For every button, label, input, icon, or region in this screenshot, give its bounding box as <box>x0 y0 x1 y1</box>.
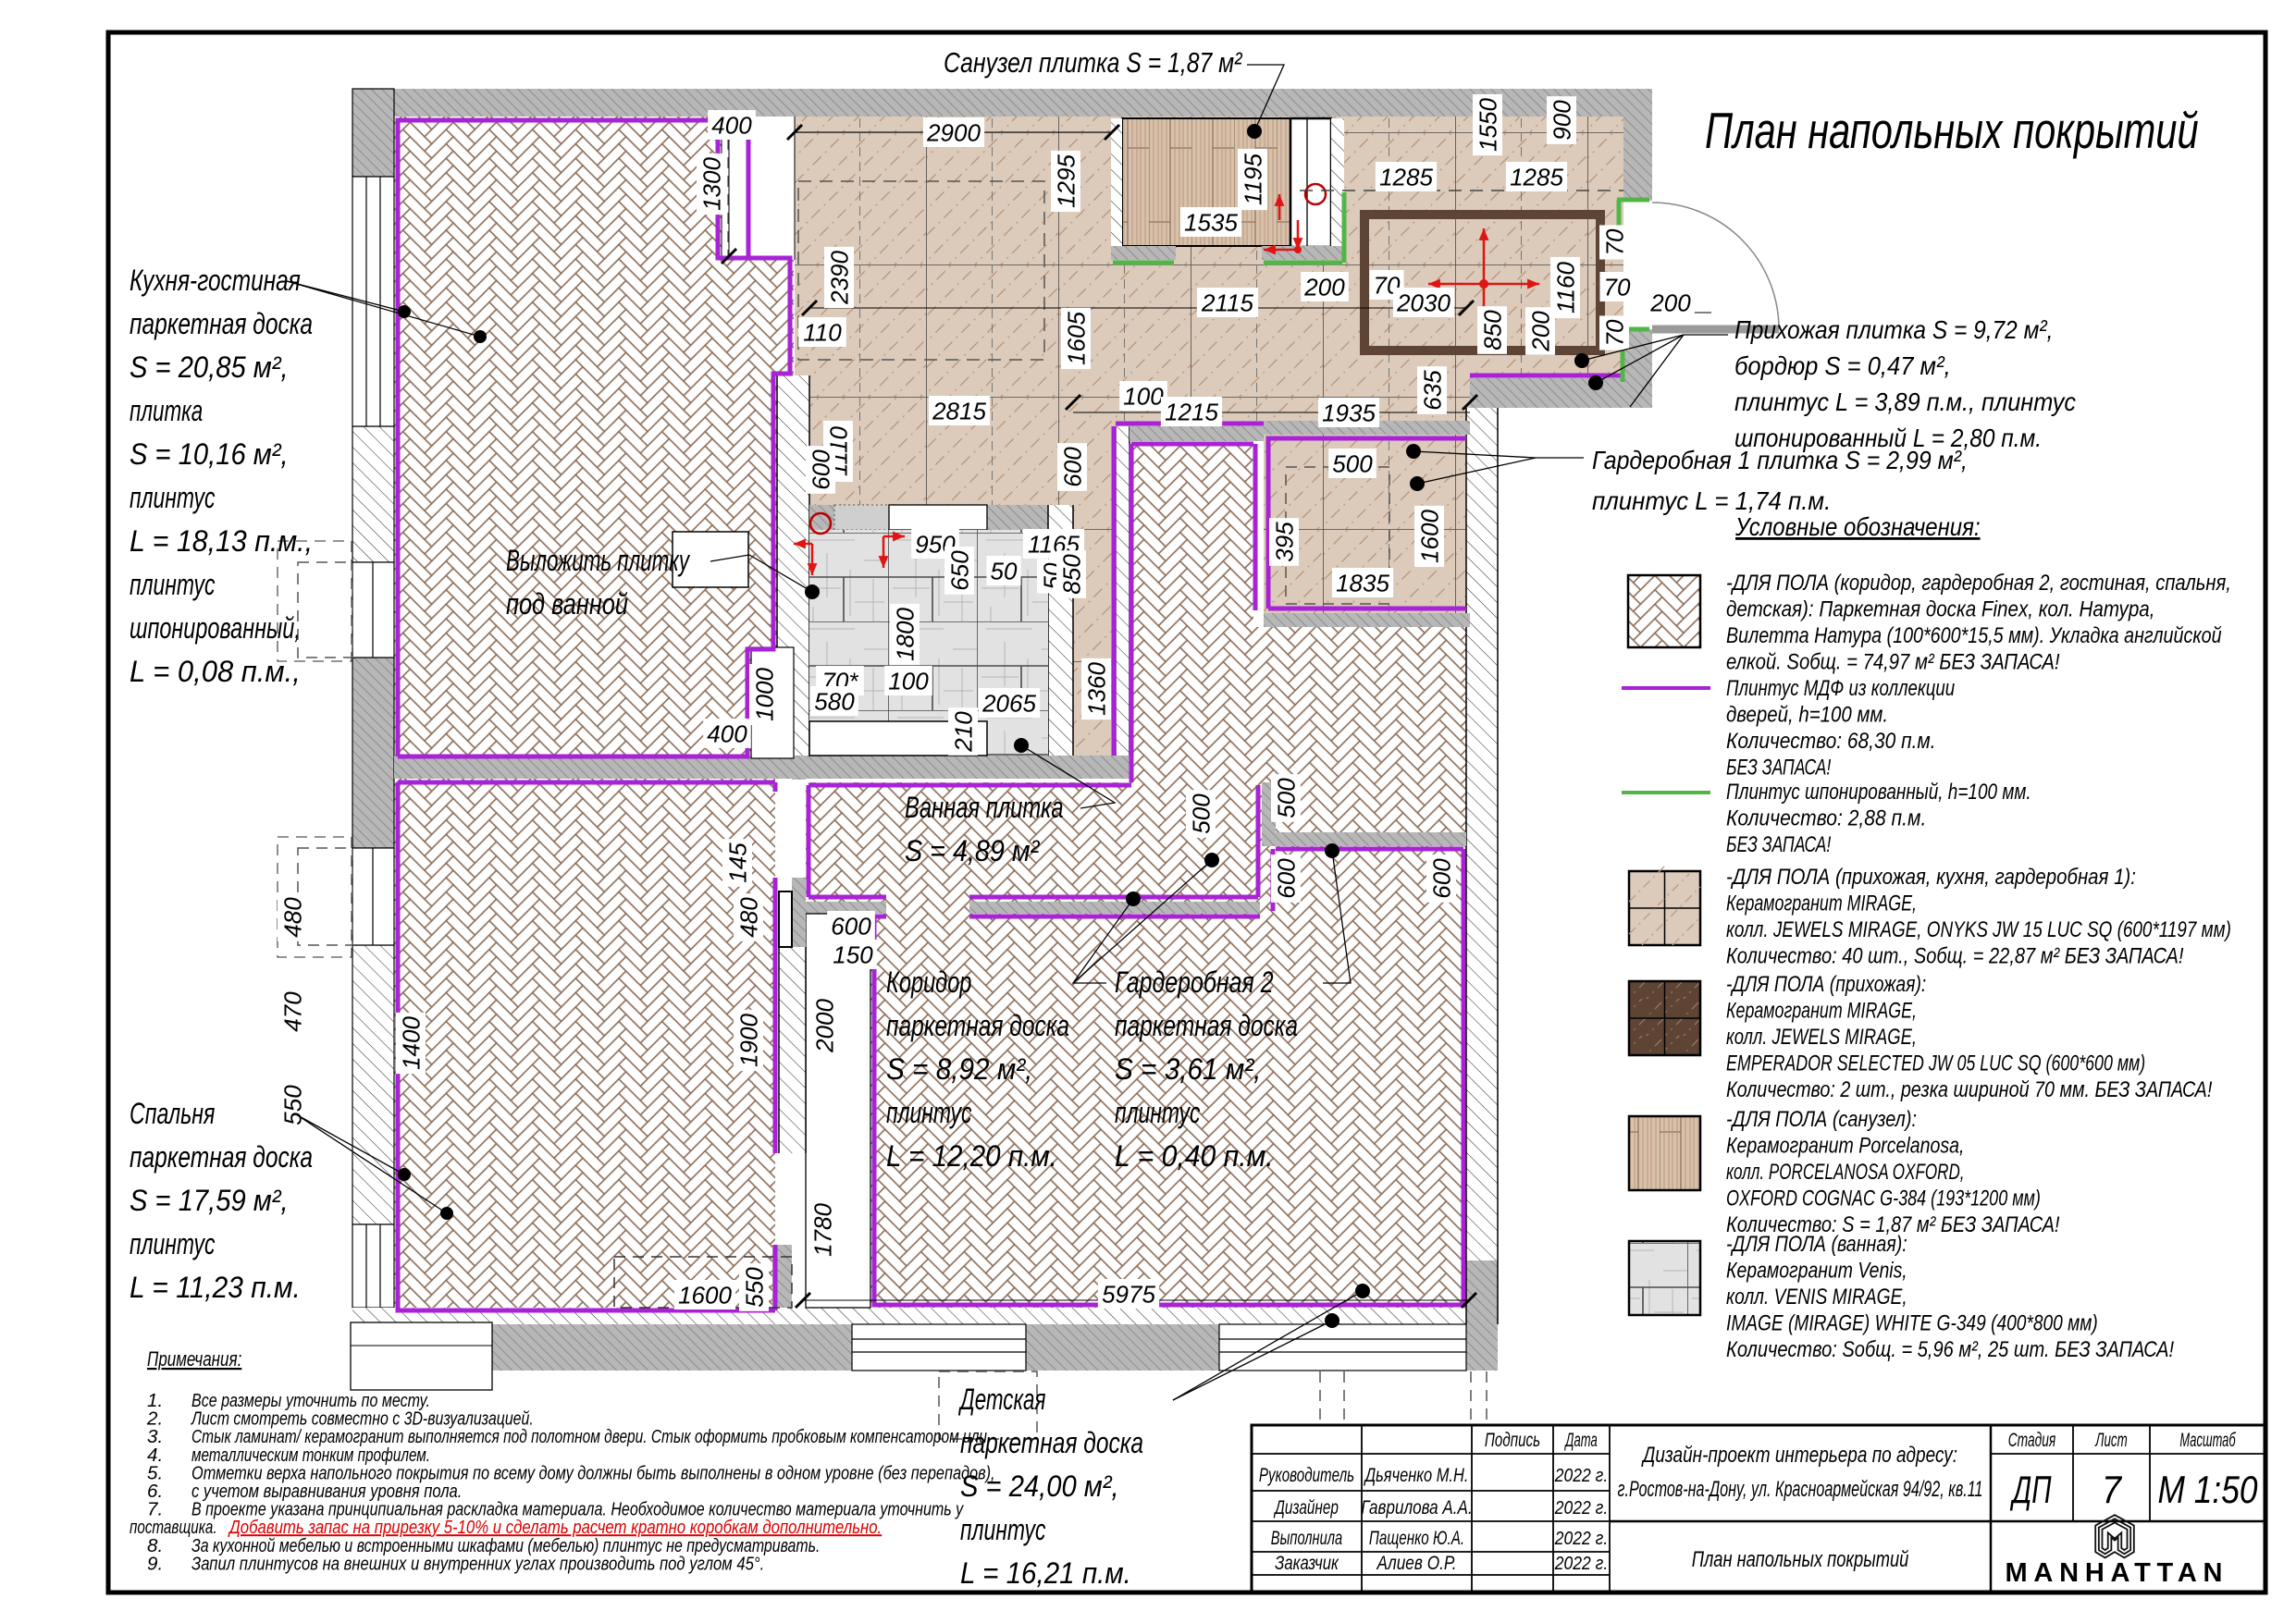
svg-text:Выложить плитку: Выложить плитку <box>506 544 690 577</box>
svg-text:Масштаб: Масштаб <box>2179 1430 2236 1451</box>
svg-text:шпонированный,: шпонированный, <box>130 611 301 645</box>
svg-text:Санузел плитка S = 1,87 м²: Санузел плитка S = 1,87 м² <box>944 46 1243 79</box>
svg-text:110: 110 <box>803 318 842 346</box>
svg-text:1300: 1300 <box>697 157 725 211</box>
svg-text:S = 4,89 м²: S = 4,89 м² <box>905 834 1040 867</box>
svg-text:100: 100 <box>1123 382 1164 410</box>
svg-text:М 1:50: М 1:50 <box>2158 1468 2259 1511</box>
svg-text:План напольных покрытий: План напольных покрытий <box>1705 102 2199 159</box>
svg-text:паркетная доска: паркетная доска <box>130 1140 313 1174</box>
svg-text:Примечания:: Примечания: <box>147 1347 241 1371</box>
svg-text:1400: 1400 <box>397 1016 425 1070</box>
svg-text:под ванной: под ванной <box>506 587 628 621</box>
svg-text:850: 850 <box>1057 554 1085 595</box>
svg-text:1295: 1295 <box>1052 154 1080 208</box>
svg-text:L = 12,20 п.м.: L = 12,20 п.м. <box>886 1139 1057 1173</box>
svg-text:2115: 2115 <box>1201 289 1253 316</box>
svg-text:Керамогранит MIRAGE,: Керамогранит MIRAGE, <box>1726 891 1917 916</box>
svg-text:плинтус: плинтус <box>886 1096 971 1129</box>
svg-text:S = 10,16 м²,: S = 10,16 м², <box>130 437 289 471</box>
svg-text:2022 г.: 2022 г. <box>1554 1466 1608 1486</box>
svg-text:1535: 1535 <box>1184 208 1238 236</box>
svg-text:Количество: 2 шт., резка ширин: Количество: 2 шт., резка шириной 70 мм. … <box>1726 1077 2213 1102</box>
svg-text:200: 200 <box>1526 311 1554 352</box>
svg-text:Стадия: Стадия <box>2008 1430 2056 1451</box>
svg-text:S = 8,92 м²,: S = 8,92 м², <box>886 1052 1032 1086</box>
svg-text:600: 600 <box>1272 858 1300 899</box>
svg-text:детская): Паркетная доска Fine: детская): Паркетная доска Finex, кол. На… <box>1726 597 2155 622</box>
svg-text:1800: 1800 <box>891 608 919 661</box>
svg-text:-ДЛЯ ПОЛА (прихожая):: -ДЛЯ ПОЛА (прихожая): <box>1726 972 1926 997</box>
svg-text:бордюр S = 0,47 м²,: бордюр S = 0,47 м², <box>1734 351 1951 380</box>
svg-text:Выполнила: Выполнила <box>1271 1528 1342 1549</box>
svg-text:БЕЗ ЗАПАСА!: БЕЗ ЗАПАСА! <box>1726 756 1832 781</box>
svg-text:Детская: Детская <box>958 1383 1045 1416</box>
svg-text:900: 900 <box>1548 100 1575 141</box>
svg-text:Плинтус шпонированный, h=100 м: Плинтус шпонированный, h=100 мм. <box>1726 780 2031 805</box>
svg-text:200: 200 <box>1649 289 1691 316</box>
svg-text:70: 70 <box>1600 319 1628 346</box>
svg-text:1215: 1215 <box>1165 398 1218 425</box>
svg-text:колл. PORCELANOSA OXFORD,: колл. PORCELANOSA OXFORD, <box>1726 1160 1965 1185</box>
svg-text:70: 70 <box>1600 228 1628 255</box>
svg-text:2000: 2000 <box>810 999 838 1053</box>
svg-text:70: 70 <box>1604 273 1631 301</box>
svg-text:г.Ростов-на-Дону, ул. Красноар: г.Ростов-на-Дону, ул. Красноармейская 94… <box>1618 1477 1983 1502</box>
svg-text:плинтус: плинтус <box>1115 1096 1200 1129</box>
svg-text:1160: 1160 <box>1551 262 1579 314</box>
svg-text:Пащенко Ю.А.: Пащенко Ю.А. <box>1369 1528 1464 1549</box>
svg-text:паркетная доска: паркетная доска <box>960 1426 1143 1459</box>
svg-text:Алиев О.Р.: Алиев О.Р. <box>1376 1553 1457 1574</box>
svg-text:План напольных покрытий: План напольных покрытий <box>1692 1547 1909 1572</box>
svg-text:EMPERADOR SELECTED JW 05 LUC S: EMPERADOR SELECTED JW 05 LUC SQ (600*600… <box>1726 1051 2145 1076</box>
svg-text:150: 150 <box>833 941 873 968</box>
svg-text:БЕЗ ЗАПАСА!: БЕЗ ЗАПАСА! <box>1726 832 1832 857</box>
svg-text:Дата: Дата <box>1564 1430 1598 1451</box>
svg-text:Количество: Sобщ. = 5,96 м², 2: Количество: Sобщ. = 5,96 м², 25 шт. БЕЗ … <box>1726 1337 2174 1362</box>
svg-text:Кухня-гостиная: Кухня-гостиная <box>130 264 301 297</box>
svg-text:Дизайнер: Дизайнер <box>1274 1497 1339 1518</box>
svg-text:Подпись: Подпись <box>1485 1430 1540 1451</box>
svg-text:5975: 5975 <box>1102 1280 1155 1308</box>
svg-text:600: 600 <box>1058 447 1086 487</box>
svg-text:470: 470 <box>278 991 306 1032</box>
svg-text:Количество: 68,30 п.м.: Количество: 68,30 п.м. <box>1726 729 1936 754</box>
svg-text:OXFORD COGNAC G-384 (193*1200: OXFORD COGNAC G-384 (193*1200 мм) <box>1726 1187 2041 1211</box>
svg-text:480: 480 <box>278 897 306 938</box>
svg-text:Гардеробная 2: Гардеробная 2 <box>1115 965 1274 999</box>
svg-text:200: 200 <box>1303 273 1345 301</box>
svg-text:500: 500 <box>1332 449 1373 477</box>
svg-text:-ДЛЯ ПОЛА (прихожая, кухня, га: -ДЛЯ ПОЛА (прихожая, кухня, гардеробная … <box>1726 865 2136 890</box>
svg-text:плинтус L = 3,89 п.м., плинтус: плинтус L = 3,89 п.м., плинтус <box>1734 387 2076 416</box>
svg-text:Прихожая плитка S = 9,72 м²,: Прихожая плитка S = 9,72 м², <box>1734 315 2053 344</box>
svg-text:плинтус: плинтус <box>130 1227 215 1260</box>
svg-text:600: 600 <box>807 449 834 490</box>
svg-text:ДП: ДП <box>2010 1468 2052 1511</box>
svg-text:L = 18,13 п.м.,: L = 18,13 п.м., <box>130 524 313 558</box>
svg-text:Количество: 40 шт., Sобщ. = 22: Количество: 40 шт., Sобщ. = 22,87 м² БЕЗ… <box>1726 944 2184 969</box>
svg-text:Руководитель: Руководитель <box>1259 1465 1354 1486</box>
svg-text:S = 3,61 м²,: S = 3,61 м², <box>1115 1052 1261 1086</box>
svg-text:600: 600 <box>1427 858 1455 899</box>
svg-text:Количество: 2,88 п.м.: Количество: 2,88 п.м. <box>1726 806 1926 831</box>
svg-text:2390: 2390 <box>825 251 853 305</box>
svg-text:210: 210 <box>949 711 977 753</box>
svg-text:L = 0,08 п.м.,: L = 0,08 п.м., <box>130 655 301 688</box>
svg-text:паркетная доска: паркетная доска <box>130 307 313 340</box>
svg-text:Запил плинтусов на внешних и в: Запил плинтусов на внешних и внутренних … <box>191 1554 764 1574</box>
svg-text:елкой. Sобщ. = 74,97 м² БЕЗ ЗА: елкой. Sобщ. = 74,97 м² БЕЗ ЗАПАСА! <box>1726 650 2060 675</box>
svg-text:Лист: Лист <box>2094 1430 2128 1451</box>
svg-text:2022 г.: 2022 г. <box>1554 1554 1608 1574</box>
svg-text:Керамогранит Venis,: Керамогранит Venis, <box>1726 1259 1907 1284</box>
svg-text:-ДЛЯ ПОЛА (санузел):: -ДЛЯ ПОЛА (санузел): <box>1726 1107 1917 1132</box>
svg-text:650: 650 <box>945 550 973 591</box>
svg-text:дверей, h=100 мм.: дверей, h=100 мм. <box>1726 703 1888 728</box>
svg-text:1285: 1285 <box>1510 163 1563 191</box>
svg-text:2065: 2065 <box>981 689 1036 717</box>
svg-text:L = 0,40 п.м.: L = 0,40 п.м. <box>1115 1139 1274 1173</box>
svg-text:колл. VENIS MIRAGE,: колл. VENIS MIRAGE, <box>1726 1285 1907 1309</box>
svg-text:L = 11,23 п.м.: L = 11,23 п.м. <box>130 1271 301 1304</box>
svg-text:100: 100 <box>888 667 929 695</box>
svg-text:2815: 2815 <box>932 397 986 424</box>
svg-text:Керамогранит MIRAGE,: Керамогранит MIRAGE, <box>1726 999 1917 1024</box>
svg-text:MANHATTAN: MANHATTAN <box>2006 1558 2223 1588</box>
svg-text:400: 400 <box>707 719 747 747</box>
svg-text:580: 580 <box>814 687 855 715</box>
svg-text:-ДЛЯ ПОЛА (ванная):: -ДЛЯ ПОЛА (ванная): <box>1726 1232 1907 1257</box>
svg-text:550: 550 <box>740 1267 768 1308</box>
svg-text:Условные обозначения:: Условные обозначения: <box>1734 512 1980 541</box>
svg-text:1550: 1550 <box>1474 98 1501 152</box>
svg-text:колл. JEWELS MIRAGE, ONYKS JW: колл. JEWELS MIRAGE, ONYKS JW 15 LUC SQ … <box>1726 917 2231 942</box>
svg-text:850: 850 <box>1478 310 1506 350</box>
svg-text:плинтус: плинтус <box>130 481 215 514</box>
svg-text:1360: 1360 <box>1082 662 1110 716</box>
svg-text:Вилетта Натура (100*600*15,5 м: Вилетта Натура (100*600*15,5 мм). Укладк… <box>1726 623 2222 648</box>
svg-text:L = 16,21 п.м.: L = 16,21 п.м. <box>960 1556 1131 1590</box>
svg-text:480: 480 <box>734 897 762 938</box>
svg-text:Гардеробная 1 плитка S = 2,99: Гардеробная 1 плитка S = 2,99 м², <box>1592 446 1968 474</box>
svg-text:600: 600 <box>831 912 871 940</box>
svg-text:1600: 1600 <box>1415 510 1443 563</box>
svg-text:Дизайн-проект интерьера по адр: Дизайн-проект интерьера по адресу: <box>1641 1443 1957 1468</box>
svg-text:Керамогранит Porcelanosa,: Керамогранит Porcelanosa, <box>1726 1134 1965 1159</box>
svg-text:IMAGE (MIRAGE) WHITE G-349 (40: IMAGE (MIRAGE) WHITE G-349 (400*800 мм) <box>1726 1311 2098 1336</box>
svg-text:500: 500 <box>1187 793 1215 834</box>
svg-text:S = 20,85 м²,: S = 20,85 м², <box>130 350 289 384</box>
svg-text:плитка: плитка <box>130 394 203 427</box>
svg-text:Ванная плитка: Ванная плитка <box>905 791 1064 824</box>
svg-text:1900: 1900 <box>734 1014 762 1067</box>
svg-text:плинтус: плинтус <box>960 1513 1045 1546</box>
svg-text:1780: 1780 <box>809 1203 836 1257</box>
svg-text:плинтус L = 1,74 п.м.: плинтус L = 1,74 п.м. <box>1592 486 1831 515</box>
svg-text:1835: 1835 <box>1336 569 1389 596</box>
svg-text:635: 635 <box>1418 370 1446 411</box>
svg-text:2030: 2030 <box>1396 289 1450 316</box>
svg-text:1000: 1000 <box>750 668 778 721</box>
svg-text:Спальня: Спальня <box>130 1097 215 1130</box>
svg-text:2900: 2900 <box>926 118 981 146</box>
svg-text:Коридор: Коридор <box>886 965 971 999</box>
svg-text:1600: 1600 <box>678 1281 732 1309</box>
svg-text:2022 г.: 2022 г. <box>1554 1498 1608 1518</box>
svg-text:-ДЛЯ ПОЛА (коридор, гардеробна: -ДЛЯ ПОЛА (коридор, гардеробная 2, гости… <box>1726 571 2231 596</box>
svg-text:Дьяченко М.Н.: Дьяченко М.Н. <box>1364 1465 1468 1486</box>
svg-text:1935: 1935 <box>1322 399 1376 426</box>
svg-text:145: 145 <box>723 842 751 883</box>
svg-text:395: 395 <box>1270 522 1298 562</box>
svg-text:Заказчик: Заказчик <box>1275 1553 1339 1574</box>
svg-text:400: 400 <box>711 111 752 139</box>
svg-text:7: 7 <box>2102 1468 2122 1511</box>
svg-text:Гаврилова А.А.: Гаврилова А.А. <box>1361 1497 1472 1518</box>
svg-text:плинтус: плинтус <box>130 568 215 601</box>
svg-text:Плинтус МДФ из коллекции: Плинтус МДФ из коллекции <box>1726 676 1955 701</box>
svg-text:S = 17,59 м²,: S = 17,59 м², <box>130 1184 289 1217</box>
svg-text:колл. JEWELS MIRAGE,: колл. JEWELS MIRAGE, <box>1726 1025 1917 1050</box>
svg-text:2022 г.: 2022 г. <box>1554 1529 1608 1549</box>
svg-text:паркетная доска: паркетная доска <box>886 1009 1069 1042</box>
svg-text:1605: 1605 <box>1062 312 1090 365</box>
svg-text:50: 50 <box>991 557 1018 584</box>
svg-text:500: 500 <box>1272 778 1300 818</box>
svg-text:1285: 1285 <box>1379 163 1433 191</box>
svg-text:паркетная доска: паркетная доска <box>1115 1009 1298 1042</box>
svg-text:9.: 9. <box>147 1554 163 1574</box>
svg-text:1195: 1195 <box>1239 154 1266 205</box>
